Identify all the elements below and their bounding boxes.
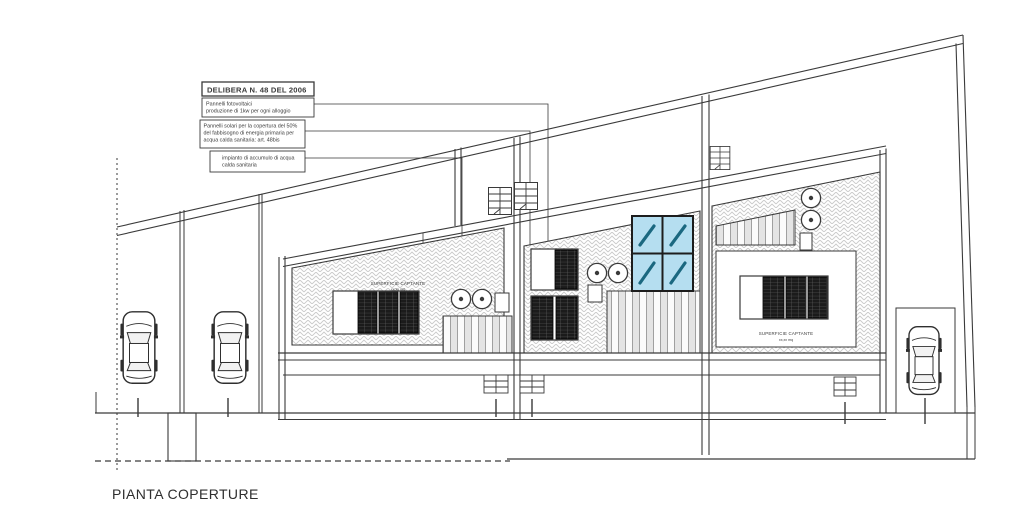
roof-section-center — [524, 211, 700, 353]
stair-grid — [710, 146, 730, 169]
surface-label-right: SUPERFICIE CAPTANTE — [759, 331, 813, 336]
roof-hatch-box — [495, 293, 509, 312]
roof-hatch-box — [800, 233, 812, 250]
roof-section-right: SUPERFICIE CAPTANTE xx,xx mq — [712, 172, 880, 353]
solar-panel — [786, 277, 806, 318]
roof-section-left: SUPERFICIE CAPTANTE xx,xx mq — [292, 228, 512, 353]
parking-area-left — [96, 158, 262, 470]
note-solar-box: Pannelli solari per la copertura del 50%… — [200, 120, 305, 148]
note-solar-line1: Pannelli solari per la copertura del 50% — [204, 124, 298, 130]
note-storage-line1: impianto di accumulo di acqua — [222, 156, 295, 162]
solar-panel-group-left — [333, 291, 419, 334]
surface-area-left: xx,xx mq — [391, 288, 405, 292]
skylight — [632, 216, 693, 291]
storage-tank-circle — [608, 263, 627, 282]
roof-plan-drawing: DELIBERA N. 48 DEL 2006 Pannelli fotovol… — [0, 0, 1024, 513]
solar-panel — [808, 277, 827, 318]
note-solar-line3: acqua calda sanitaria: art. 48bis — [204, 138, 280, 144]
roof-hatch-box — [588, 285, 602, 302]
surface-area-right: xx,xx mq — [779, 338, 793, 342]
solar-panel — [763, 277, 784, 318]
walkway-grate — [607, 291, 700, 353]
stairs — [489, 146, 730, 214]
note-storage-box: impianto di accumulo di acqua calda sani… — [210, 151, 305, 172]
storage-tank-circle — [587, 263, 606, 282]
solar-panel — [400, 292, 418, 333]
solar-panel-group-center-lower — [531, 296, 578, 340]
walkway-grate — [443, 316, 512, 353]
solar-panel — [379, 292, 398, 333]
note-storage-line2: calda sanitaria — [222, 163, 257, 169]
storage-tank-circle — [801, 188, 820, 207]
storage-tank-circle — [451, 289, 470, 308]
surface-label-left: SUPERFICIE CAPTANTE — [371, 281, 425, 286]
delibera-title-box: DELIBERA N. 48 DEL 2006 — [202, 82, 314, 96]
solar-panel — [532, 297, 553, 339]
solar-panel-group-center-upper — [531, 249, 578, 290]
note-photovoltaic-line2: produzione di 1kw per ogni alloggio — [206, 109, 291, 115]
storage-tank-circle — [472, 289, 491, 308]
solar-panel — [555, 250, 577, 289]
delibera-title: DELIBERA N. 48 DEL 2006 — [207, 86, 307, 95]
stair-grid — [515, 183, 538, 210]
pillar — [168, 413, 196, 461]
stair-grid — [489, 188, 512, 215]
car-top-view — [120, 312, 158, 383]
storage-tank-circle — [801, 210, 820, 229]
car-top-view — [906, 327, 942, 395]
car-top-view — [211, 312, 249, 383]
parking-area-right — [896, 308, 955, 424]
solar-panel-group-right — [740, 276, 828, 319]
solar-panel — [358, 292, 377, 333]
note-photovoltaic-box: Pannelli fotovoltaici produzione di 1kw … — [202, 98, 314, 117]
solar-panel — [556, 297, 577, 339]
note-solar-line2: del fabbisogno di energia primaria per — [204, 131, 295, 137]
plan-title: PIANTA COPERTURE — [112, 486, 259, 502]
ladder-steps — [834, 377, 856, 424]
note-photovoltaic-line1: Pannelli fotovoltaici — [206, 102, 252, 108]
